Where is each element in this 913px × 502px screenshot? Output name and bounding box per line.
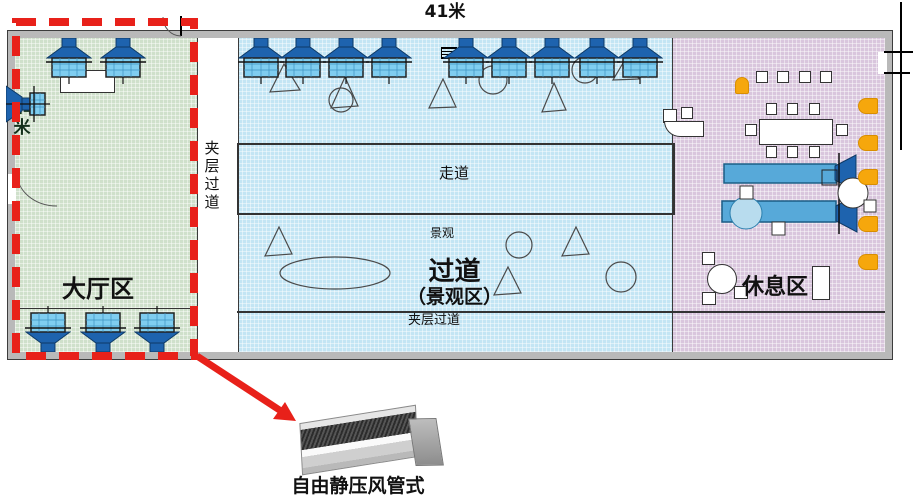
corridor-sublabel: （景观区） bbox=[377, 287, 532, 308]
chair bbox=[745, 124, 757, 136]
air-diffuser-icon bbox=[280, 38, 326, 84]
air-diffuser-icon bbox=[100, 38, 146, 84]
chair bbox=[787, 103, 798, 115]
ac-grille bbox=[301, 412, 417, 450]
chair bbox=[702, 292, 716, 305]
air-diffuser-icon bbox=[486, 38, 532, 84]
callout-arrow-head bbox=[273, 402, 296, 421]
air-diffuser-icon bbox=[574, 38, 620, 84]
scenic-label: 景观 bbox=[430, 227, 454, 240]
air-diffuser-icon bbox=[80, 306, 126, 352]
armchair bbox=[858, 254, 878, 270]
ac-caption: 自由静压风管式 bbox=[278, 476, 438, 497]
chair bbox=[820, 71, 832, 83]
mezzanine-left-label: 夹层过道 bbox=[203, 140, 220, 260]
chair bbox=[809, 103, 820, 115]
zone-divider bbox=[197, 38, 198, 352]
chair bbox=[836, 124, 848, 136]
air-diffuser-icon bbox=[6, 84, 50, 124]
mezzanine-bottom-label: 夹层过道 bbox=[408, 314, 460, 328]
corridor-label: 过道 bbox=[377, 258, 532, 287]
air-diffuser-icon bbox=[238, 38, 284, 84]
chair bbox=[809, 146, 820, 158]
chair bbox=[766, 103, 777, 115]
air-diffuser-icon bbox=[25, 306, 71, 352]
chair bbox=[702, 252, 715, 265]
air-diffuser-icon bbox=[529, 38, 575, 84]
armchair bbox=[735, 77, 749, 94]
cabinet bbox=[812, 266, 830, 300]
chair bbox=[777, 71, 789, 83]
lobby-label: 大厅区 bbox=[62, 276, 134, 302]
right-door-gap bbox=[878, 52, 887, 74]
armchair bbox=[858, 216, 878, 232]
armchair bbox=[858, 135, 878, 151]
air-diffuser-icon bbox=[366, 38, 412, 84]
mezzanine-bottom-line bbox=[237, 311, 885, 313]
meeting-table bbox=[759, 119, 833, 145]
right-wall-line bbox=[900, 2, 902, 150]
dimension-top: 41米 bbox=[400, 3, 490, 22]
air-diffuser-icon bbox=[46, 38, 92, 84]
right-door-mark bbox=[884, 51, 913, 53]
round-table bbox=[707, 264, 737, 294]
armchair bbox=[858, 169, 878, 185]
top-door-jamb bbox=[180, 16, 182, 36]
left-door-gap bbox=[8, 174, 16, 204]
walkway-label: 走道 bbox=[237, 165, 671, 182]
air-diffuser-icon bbox=[323, 38, 369, 84]
floor-plan-diagram: 41米 14米 大厅区 休息区 走道 景观 过道 （景观区） 夹层过道 夹层过道… bbox=[0, 0, 913, 502]
air-diffuser-icon bbox=[617, 38, 663, 84]
rest-label: 休息区 bbox=[742, 276, 808, 300]
callout-arrow-line bbox=[197, 356, 281, 411]
chair bbox=[766, 146, 777, 158]
chair bbox=[681, 107, 693, 119]
air-diffuser-icon bbox=[134, 306, 180, 352]
armchair bbox=[858, 98, 878, 114]
chair bbox=[787, 146, 798, 158]
chair bbox=[799, 71, 811, 83]
chair bbox=[756, 71, 768, 83]
air-diffuser-icon bbox=[443, 38, 489, 84]
right-door-mark bbox=[884, 72, 910, 74]
duct-ac-unit-image bbox=[298, 406, 440, 472]
